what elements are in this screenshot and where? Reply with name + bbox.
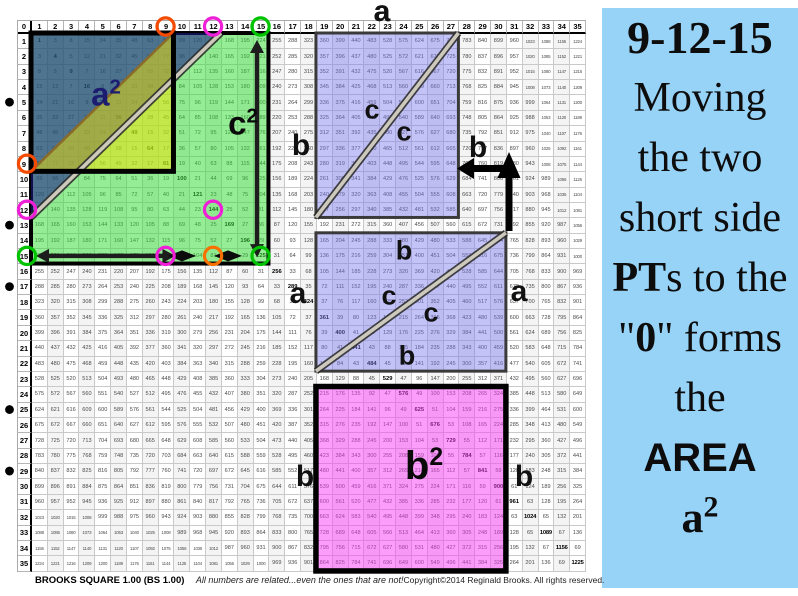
grid-cell: 760	[159, 464, 175, 479]
sidebar-text-segment: short side	[619, 195, 781, 241]
grid-cell: 1144	[570, 157, 586, 172]
grid-cell: 780	[48, 449, 64, 464]
grid-cell: 143	[206, 34, 222, 49]
grid-cell: 500	[491, 326, 507, 341]
grid-cell: 837	[48, 464, 64, 479]
row-header: 12	[18, 203, 32, 218]
grid-cell: 672	[554, 357, 570, 372]
grid-cell: 399	[333, 34, 349, 49]
grid-cell: 256	[206, 326, 222, 341]
grid-cell: 480	[428, 234, 444, 249]
grid-cell: 1075	[159, 541, 175, 556]
grid-cell: 405	[301, 433, 317, 448]
grid-cell: 200	[380, 433, 396, 448]
grid-cell: 63	[523, 495, 539, 510]
grid-cell: 185	[349, 264, 365, 279]
sidebar-text-segment: Moving	[633, 75, 766, 121]
grid-cell: 368	[317, 433, 333, 448]
grid-cell: 112	[206, 264, 222, 279]
grid-cell: 348	[428, 510, 444, 525]
grid-cell: 451	[254, 418, 270, 433]
grid-cell: 341	[174, 341, 190, 356]
grid-cell: 960	[32, 495, 48, 510]
grid-cell: 1029	[570, 234, 586, 249]
grid-cell: 840	[507, 188, 523, 203]
grid-cell: 840	[32, 464, 48, 479]
grid-cell: 72	[64, 157, 80, 172]
grid-cell: 903	[190, 510, 206, 525]
grid-cell: 23	[190, 203, 206, 218]
grid-cell: 899	[32, 479, 48, 494]
row-header: 17	[18, 280, 32, 295]
grid-cell: 85	[111, 188, 127, 203]
grid-cell: 216	[64, 249, 80, 264]
grid-cell: 891	[491, 65, 507, 80]
grid-cell: 200	[95, 249, 111, 264]
grid-cell: 1085	[539, 49, 555, 64]
grid-cell: 435	[364, 126, 380, 141]
grid-cell: 72	[317, 280, 333, 295]
grid-cell: 45	[364, 372, 380, 387]
grid-cell: 551	[95, 387, 111, 402]
grid-cell: 345	[317, 80, 333, 95]
grid-cell: 672	[364, 541, 380, 556]
grid-cell: 1155	[32, 541, 48, 556]
grid-cell: 560	[444, 218, 460, 233]
grid-cell: 19	[159, 172, 175, 187]
grid-cell: 741	[475, 172, 491, 187]
grid-cell: 649	[570, 387, 586, 402]
grid-cell: 765	[238, 495, 254, 510]
grid-cell: 91	[174, 65, 190, 80]
grid-cell: 1020	[523, 49, 539, 64]
grid-cell: 819	[491, 157, 507, 172]
grid-cell: 384	[333, 449, 349, 464]
grid-cell: 37	[301, 310, 317, 325]
grid-cell: 408	[380, 188, 396, 203]
col-header: 34	[554, 21, 570, 34]
grid-cell: 899	[491, 34, 507, 49]
grid-cell: 729	[444, 433, 460, 448]
grid-cell: 45	[159, 111, 175, 126]
grid-cell: 297	[349, 203, 365, 218]
grid-cell: 561	[507, 326, 523, 341]
grid-cell: 987	[554, 218, 570, 233]
grid-cell: 273	[380, 264, 396, 279]
grid-cell: 260	[143, 295, 159, 310]
grid-cell: 57	[459, 464, 475, 479]
grid-cell: 63	[206, 157, 222, 172]
grid-cell: 32	[127, 157, 143, 172]
grid-cell: 224	[301, 172, 317, 187]
grid-cell: 473	[269, 433, 285, 448]
grid-cell: 795	[317, 541, 333, 556]
grid-cell: 520	[64, 372, 80, 387]
row-header: 26	[18, 418, 32, 433]
grid-cell: 372	[554, 449, 570, 464]
grid-cell: 476	[174, 387, 190, 402]
grid-cell: 384	[459, 326, 475, 341]
grid-cell: 20	[79, 111, 95, 126]
grid-cell: 828	[238, 510, 254, 525]
grid-cell: 736	[254, 495, 270, 510]
grid-cell: 645	[238, 464, 254, 479]
grid-cell: 217	[317, 203, 333, 218]
grid-cell: 21	[48, 95, 64, 110]
grid-cell: 132	[523, 541, 539, 556]
grid-cell: 912	[507, 126, 523, 141]
grid-cell: 783	[459, 34, 475, 49]
grid-cell: 440	[444, 280, 460, 295]
grid-cell: 1209	[570, 80, 586, 95]
grid-cell: 432	[396, 203, 412, 218]
sidebar-line-2: Moving	[602, 68, 798, 128]
grid-cell: 308	[79, 295, 95, 310]
grid-cell: 135	[190, 264, 206, 279]
grid-cell: 493	[111, 372, 127, 387]
grid-cell: 396	[333, 49, 349, 64]
grid-cell: 459	[349, 479, 365, 494]
grid-cell: 779	[491, 188, 507, 203]
grid-cell: 440	[32, 341, 48, 356]
grid-cell: 37	[317, 295, 333, 310]
grid-cell: 77	[48, 157, 64, 172]
grid-cell: 49	[127, 126, 143, 141]
grid-cell: 391	[333, 65, 349, 80]
grid-cell: 72	[159, 65, 175, 80]
grid-cell: 513	[380, 80, 396, 95]
grid-cell: 55	[64, 142, 80, 157]
row-header: 23	[18, 372, 32, 387]
grid-cell: 968	[539, 188, 555, 203]
row-header: 14	[18, 234, 32, 249]
grid-cell: 171	[95, 234, 111, 249]
grid-cell: 39	[333, 310, 349, 325]
grid-cell: 560	[79, 387, 95, 402]
diagram-label-b: b	[399, 343, 416, 370]
grid-cell: 608	[444, 188, 460, 203]
grid-cell: 495	[380, 510, 396, 525]
grid-cell: 77	[159, 49, 175, 64]
grid-cell: 369	[269, 403, 285, 418]
grid-cell: 989	[174, 526, 190, 541]
grid-cell: 1008	[539, 157, 555, 172]
grid-cell: 891	[64, 479, 80, 494]
grid-cell: 728	[32, 433, 48, 448]
grid-cell: 252	[301, 387, 317, 402]
grid-cell: 805	[111, 464, 127, 479]
grid-cell: 360	[222, 372, 238, 387]
grid-cell: 675	[32, 418, 48, 433]
grid-cell: 855	[222, 510, 238, 525]
grid-cell: 476	[396, 172, 412, 187]
grid-cell: 413	[428, 526, 444, 541]
grid-cell: 264	[570, 495, 586, 510]
grid-cell: 969	[570, 264, 586, 279]
grid-cell: 276	[428, 326, 444, 341]
grid-cell: 315	[364, 218, 380, 233]
grid-cell: 300	[459, 357, 475, 372]
grid-cell: 41	[349, 326, 365, 341]
grid-cell: 532	[428, 203, 444, 218]
grid-cell: 256	[491, 541, 507, 556]
grid-cell: 1040	[539, 126, 555, 141]
grid-cell: 117	[190, 49, 206, 64]
grid-cell: 187	[64, 234, 80, 249]
grid-cell: 705	[269, 495, 285, 510]
row-header: 9	[18, 157, 32, 172]
grid-cell: 1064	[95, 526, 111, 541]
grid-cell: 615	[459, 218, 475, 233]
grid-cell: 1152	[554, 49, 570, 64]
grid-cell: 25	[206, 218, 222, 233]
grid-cell: 31	[254, 264, 270, 279]
row-header: 30	[18, 479, 32, 494]
grid-cell: 513	[539, 387, 555, 402]
grid-cell: 300	[174, 326, 190, 341]
grid-cell: 861	[174, 495, 190, 510]
grid-cell: 836	[491, 142, 507, 157]
grid-cell: 575	[32, 387, 48, 402]
grid-cell: 432	[349, 65, 365, 80]
grid-cell: 17	[143, 157, 159, 172]
row-header: 5	[18, 95, 32, 110]
grid-cell: 880	[507, 157, 523, 172]
grid-cell: 136	[254, 310, 270, 325]
grid-cell: 357	[475, 357, 491, 372]
grid-cell: 33	[127, 80, 143, 95]
grid-cell: 825	[79, 464, 95, 479]
col-header: 13	[222, 21, 238, 34]
row-header: 3	[18, 65, 32, 80]
grid-cell: 144	[269, 326, 285, 341]
grid-cell: 93	[238, 280, 254, 295]
sidebar-text-segment: the two	[638, 135, 763, 181]
grid-cell: 440	[285, 433, 301, 448]
grid-cell: 119	[95, 203, 111, 218]
grid-cell: 196	[238, 234, 254, 249]
grid-cell: 1200	[570, 95, 586, 110]
grid-cell: 735	[127, 449, 143, 464]
grid-cell: 336	[95, 310, 111, 325]
grid-cell: 416	[491, 357, 507, 372]
grid-cell: 304	[254, 372, 270, 387]
grid-cell: 56	[159, 95, 175, 110]
grid-cell: 540	[364, 510, 380, 525]
grid-cell: 207	[269, 126, 285, 141]
grid-cell: 912	[127, 495, 143, 510]
grid-cell: 441	[349, 341, 365, 356]
grid-cell: 529	[380, 372, 396, 387]
grid-cell: 1053	[111, 526, 127, 541]
grid-cell: 15	[127, 142, 143, 157]
col-header: 11	[190, 21, 206, 34]
grid-cell: 136	[570, 526, 586, 541]
grid-cell: 448	[396, 510, 412, 525]
grid-cell: 247	[64, 264, 80, 279]
grid-cell: 315	[317, 418, 333, 433]
grid-cell: 195	[285, 357, 301, 372]
grid-cell: 27	[222, 234, 238, 249]
grid-cell: 576	[491, 295, 507, 310]
grid-cell: 629	[444, 172, 460, 187]
grid-cell: 477	[507, 357, 523, 372]
grid-cell: 615	[222, 449, 238, 464]
col-header: 19	[317, 21, 333, 34]
grid-cell: 600	[570, 403, 586, 418]
grid-cell: 105	[143, 218, 159, 233]
grid-cell: 336	[412, 495, 428, 510]
row-header: 2	[18, 49, 32, 64]
diagram-label-b2: b2	[405, 446, 443, 486]
grid-cell: 55	[143, 65, 159, 80]
grid-cell: 837	[475, 49, 491, 64]
grid-cell: 255	[269, 34, 285, 49]
grid-cell: 319	[333, 157, 349, 172]
grid-cell: 483	[364, 34, 380, 49]
grid-cell: 1189	[570, 111, 586, 126]
grid-cell: 224	[254, 34, 270, 49]
grid-cell: 675	[491, 249, 507, 264]
grid-cell: 252	[269, 49, 285, 64]
grid-cell: 75	[190, 234, 206, 249]
grid-cell: 875	[95, 479, 111, 494]
grid-cell: 924	[523, 172, 539, 187]
grid-cell: 589	[111, 403, 127, 418]
grid-cell: 432	[507, 372, 523, 387]
grid-cell: 189	[539, 479, 555, 494]
grid-cell: 192	[269, 142, 285, 157]
grid-cell: 495	[523, 372, 539, 387]
grid-cell: 168	[317, 372, 333, 387]
pt-row-dot	[5, 98, 14, 107]
grid-cell: 152	[349, 280, 365, 295]
grid-cell: 95	[206, 126, 222, 141]
grid-cell: 235	[428, 341, 444, 356]
grid-cell: 561	[333, 495, 349, 510]
grid-cell: 153	[79, 218, 95, 233]
grid-cell: 1035	[190, 541, 206, 556]
grid-cell: 345	[79, 310, 95, 325]
grid-cell: 261	[317, 172, 333, 187]
grid-cell: 255	[459, 372, 475, 387]
grid-cell: 676	[428, 418, 444, 433]
grid-cell: 68	[269, 295, 285, 310]
grid-cell: 473	[444, 264, 460, 279]
grid-cell: 56	[222, 249, 238, 264]
grid-cell: 80	[143, 203, 159, 218]
col-header: 10	[174, 21, 190, 34]
grid-cell: 48	[127, 34, 143, 49]
grid-cell: 63	[32, 142, 48, 157]
grid-cell: 96	[174, 49, 190, 64]
grid-cell: 429	[238, 403, 254, 418]
grid-cell: 112	[475, 433, 491, 448]
grid-cell: 85	[190, 111, 206, 126]
grid-cell: 72	[285, 310, 301, 325]
grid-cell: 305	[539, 449, 555, 464]
grid-cell: 360	[349, 157, 365, 172]
grid-cell: 128	[79, 203, 95, 218]
row-header: 33	[18, 526, 32, 541]
grid-cell: 209	[254, 80, 270, 95]
grid-cell: 320	[396, 264, 412, 279]
grid-cell: 253	[285, 111, 301, 126]
grid-cell: 884	[491, 80, 507, 95]
grid-cell: 320	[301, 49, 317, 64]
grid-cell: 880	[159, 495, 175, 510]
grid-cell: 120	[222, 280, 238, 295]
grid-cell: 480	[475, 310, 491, 325]
grid-cell: 203	[190, 295, 206, 310]
grid-cell: 69	[222, 172, 238, 187]
grid-cell: 108	[206, 111, 222, 126]
grid-cell: 495	[159, 387, 175, 402]
grid-cell: 357	[364, 464, 380, 479]
grid-cell: 91	[64, 172, 80, 187]
grid-cell: 855	[523, 218, 539, 233]
grid-cell: 69	[174, 218, 190, 233]
grid-cell: 135	[269, 188, 285, 203]
grid-cell: 504	[254, 433, 270, 448]
grid-cell: 308	[301, 80, 317, 95]
grid-cell: 93	[285, 234, 301, 249]
grid-cell: 288	[349, 433, 365, 448]
grid-cell: 1092	[143, 541, 159, 556]
grid-cell: 1008	[159, 526, 175, 541]
grid-cell: 429	[412, 234, 428, 249]
grid-cell: 989	[539, 172, 555, 187]
grid-cell: 840	[190, 495, 206, 510]
grid-cell: 616	[254, 464, 270, 479]
grid-cell: 3	[48, 34, 64, 49]
footer-left: BROOKS SQUARE 1.00 (BS 1.00) All numbers…	[17, 570, 403, 588]
grid-cell: 660	[79, 418, 95, 433]
grid-cell: 153	[222, 80, 238, 95]
grid-cell: 817	[507, 203, 523, 218]
grid-cell: 588	[459, 234, 475, 249]
grid-cell: 87	[269, 218, 285, 233]
grid-cell: 27	[238, 218, 254, 233]
col-header: 24	[396, 21, 412, 34]
grid-cell: 1161	[570, 142, 586, 157]
grid-cell: 135	[64, 203, 80, 218]
grid-cell: 567	[64, 387, 80, 402]
grid-cell: 325	[570, 479, 586, 494]
grid-cell: 799	[523, 249, 539, 264]
grid-cell: 1156	[554, 541, 570, 556]
grid-cell: 32	[111, 49, 127, 64]
grid-cell: 256	[333, 203, 349, 218]
grid-cell: 544	[412, 157, 428, 172]
sidebar-line-7: the	[602, 368, 798, 428]
grid-cell: 460	[459, 295, 475, 310]
grid-cell: 841	[475, 464, 491, 479]
grid-cell: 640	[206, 449, 222, 464]
grid-cell: 208	[459, 387, 475, 402]
grid-cell: 144	[206, 203, 222, 218]
grid-cell: 1015	[523, 65, 539, 80]
grid-cell: 396	[48, 326, 64, 341]
grid-cell: 99	[254, 295, 270, 310]
grid-cell: 903	[523, 188, 539, 203]
grid-cell: 240	[127, 280, 143, 295]
grid-cell: 336	[507, 403, 523, 418]
grid-cell: 405	[349, 111, 365, 126]
grid-cell: 256	[554, 479, 570, 494]
grid-cell: 12	[79, 49, 95, 64]
grid-cell: 549	[570, 418, 586, 433]
